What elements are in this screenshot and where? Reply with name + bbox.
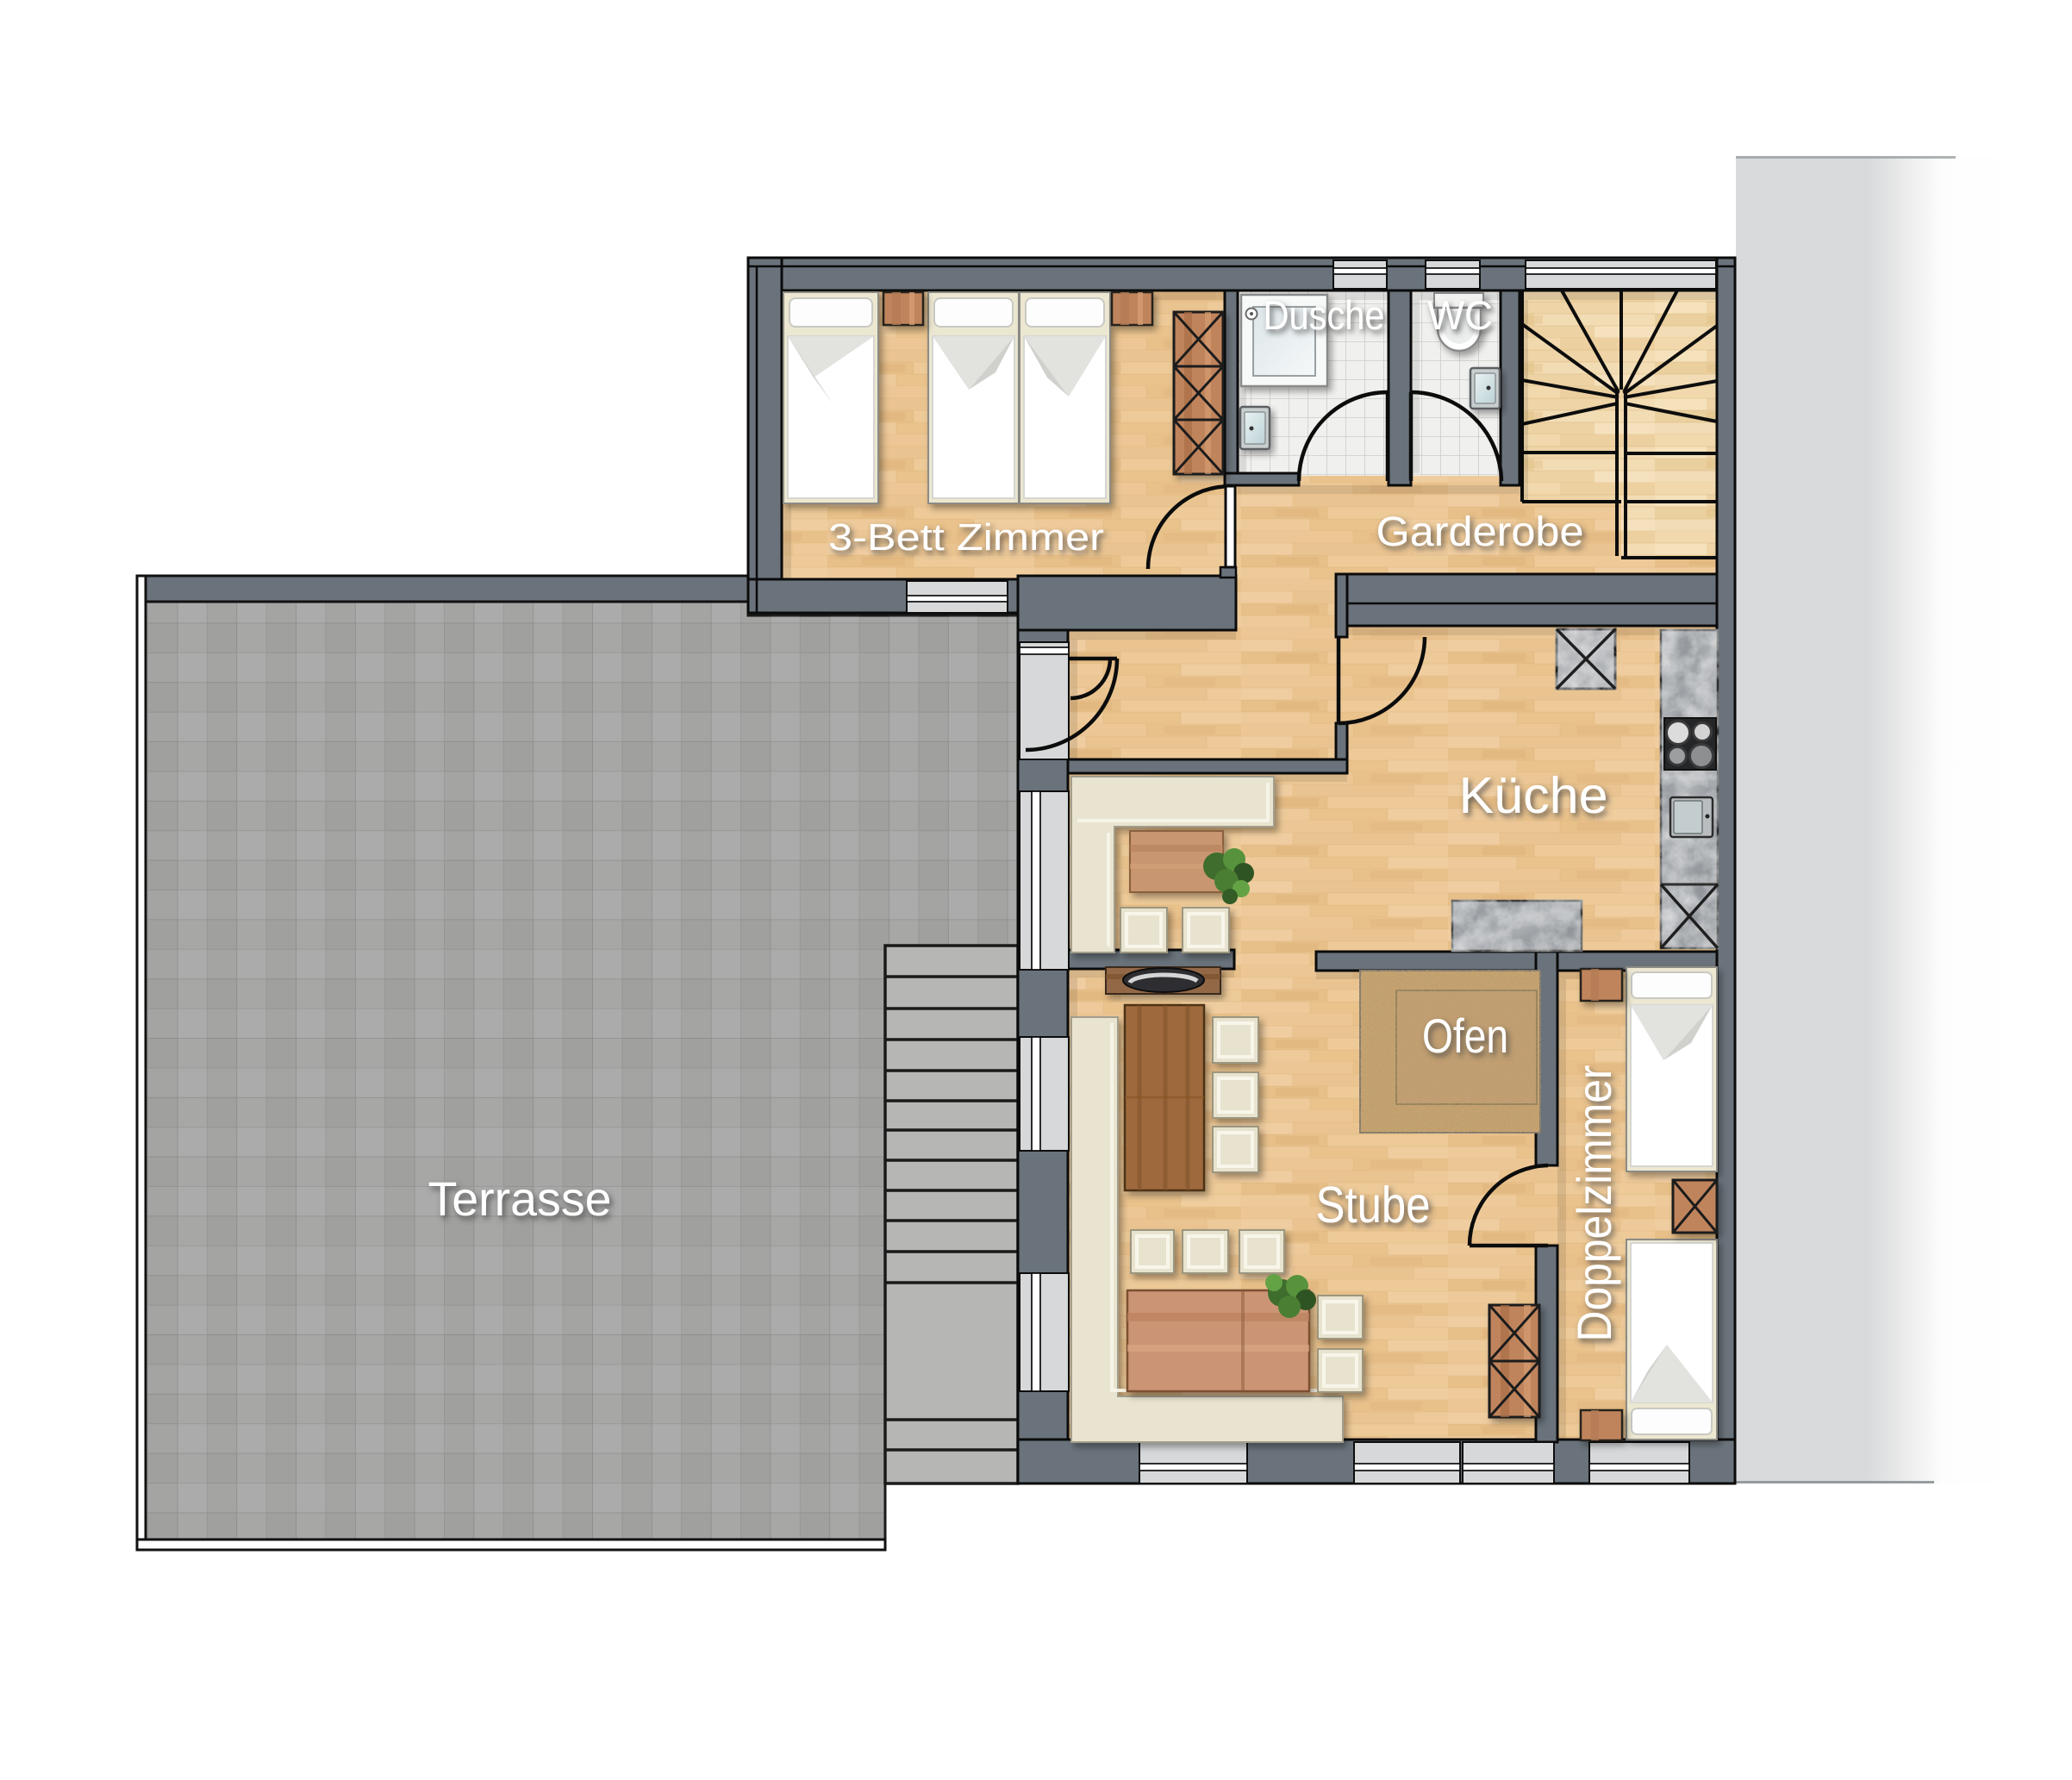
- svg-text:Ofen: Ofen: [1422, 1009, 1508, 1063]
- svg-text:Doppelzimmer: Doppelzimmer: [1567, 1065, 1621, 1342]
- svg-text:3-Bett Zimmer: 3-Bett Zimmer: [828, 516, 1104, 559]
- svg-text:WC: WC: [1427, 292, 1493, 338]
- svg-text:Dusche: Dusche: [1264, 292, 1385, 338]
- svg-text:Garderobe: Garderobe: [1376, 509, 1584, 555]
- svg-text:Küche: Küche: [1459, 767, 1608, 824]
- svg-text:Terrasse: Terrasse: [428, 1171, 612, 1226]
- svg-text:Stube: Stube: [1316, 1177, 1431, 1234]
